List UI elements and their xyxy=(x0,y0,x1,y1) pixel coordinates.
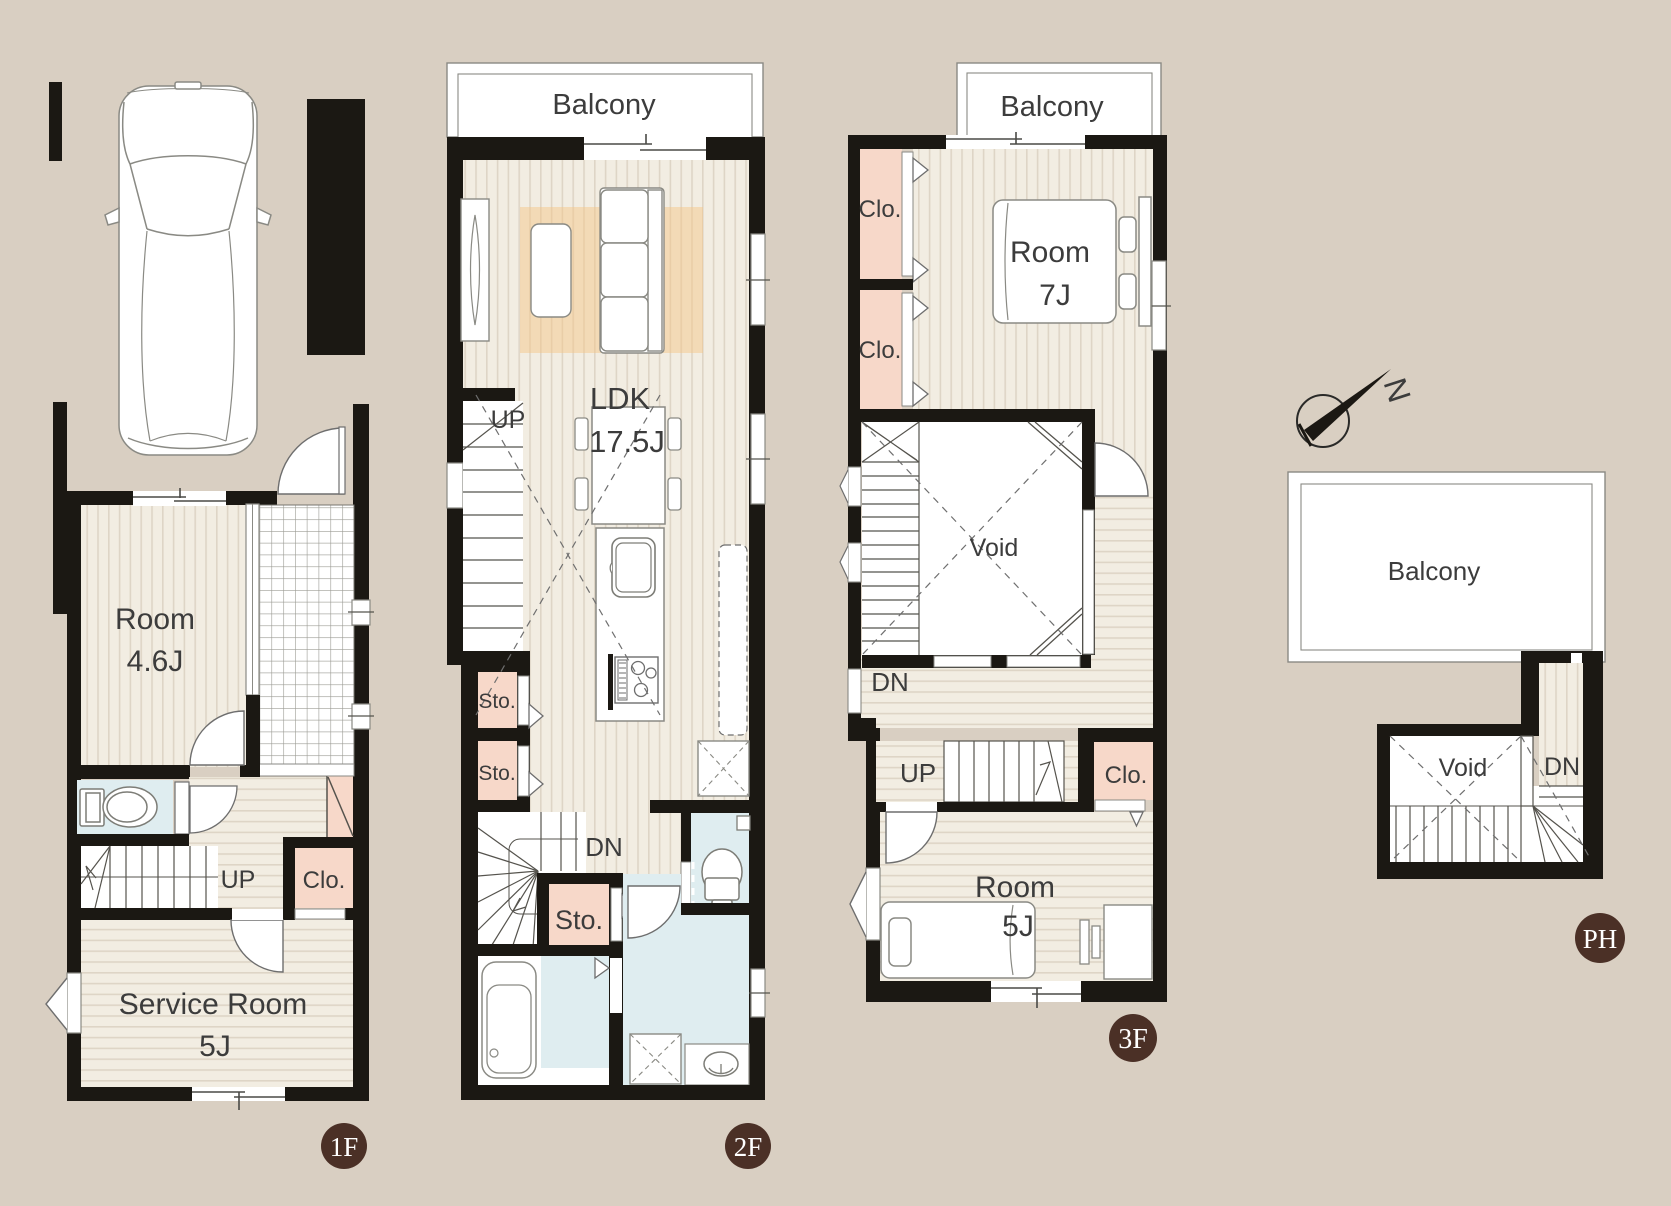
svg-text:1F: 1F xyxy=(330,1132,359,1162)
svg-text:DN: DN xyxy=(585,832,623,862)
svg-text:Clo.: Clo. xyxy=(1105,762,1148,789)
svg-text:Room: Room xyxy=(1010,236,1090,269)
svg-text:3F: 3F xyxy=(1118,1024,1148,1055)
svg-text:DN: DN xyxy=(1544,753,1580,781)
svg-text:UP: UP xyxy=(491,406,526,434)
svg-text:PH: PH xyxy=(1583,924,1618,954)
svg-text:Room: Room xyxy=(115,603,195,636)
svg-text:5J: 5J xyxy=(199,1030,231,1063)
svg-text:Clo.: Clo. xyxy=(859,196,902,223)
svg-text:Room: Room xyxy=(975,871,1055,904)
svg-text:Void: Void xyxy=(970,534,1019,562)
svg-text:Sto.: Sto. xyxy=(555,905,603,935)
svg-text:Void: Void xyxy=(1439,754,1488,782)
svg-text:4.6J: 4.6J xyxy=(127,645,184,678)
svg-text:Clo.: Clo. xyxy=(859,337,902,364)
svg-text:Balcony: Balcony xyxy=(1388,556,1481,586)
svg-text:Balcony: Balcony xyxy=(1000,91,1104,123)
svg-text:Balcony: Balcony xyxy=(552,89,656,121)
svg-text:Clo.: Clo. xyxy=(303,867,346,894)
svg-text:UP: UP xyxy=(221,866,256,894)
svg-text:Service Room: Service Room xyxy=(119,988,307,1021)
svg-text:LDK: LDK xyxy=(590,381,651,416)
svg-text:17.5J: 17.5J xyxy=(589,424,665,459)
svg-text:DN: DN xyxy=(871,667,909,697)
svg-text:Sto.: Sto. xyxy=(478,762,515,785)
svg-text:5J: 5J xyxy=(1002,910,1034,943)
svg-text:2F: 2F xyxy=(734,1132,763,1162)
svg-text:7J: 7J xyxy=(1039,279,1071,312)
svg-text:UP: UP xyxy=(900,758,936,788)
svg-text:Sto.: Sto. xyxy=(478,690,515,713)
